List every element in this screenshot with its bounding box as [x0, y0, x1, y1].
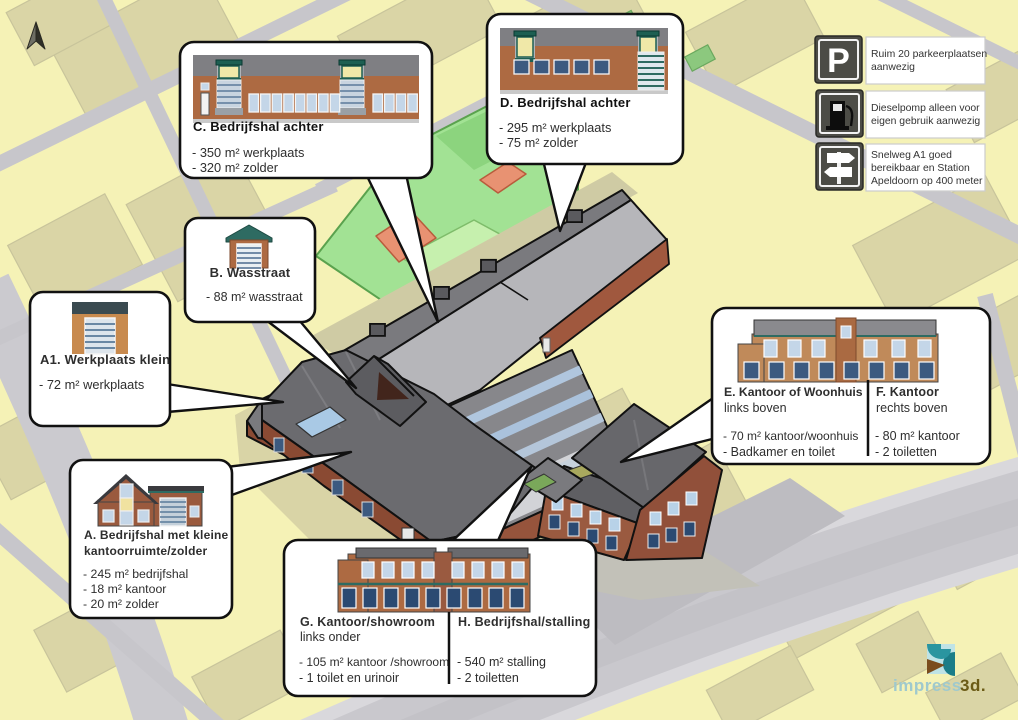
- svg-text:F. Kantoor: F. Kantoor: [876, 385, 939, 399]
- svg-text:rechts boven: rechts boven: [876, 401, 948, 415]
- svg-text:eigen gebruik aanwezig: eigen gebruik aanwezig: [871, 116, 980, 127]
- svg-text:Ruim 20 parkeerplaatsen: Ruim 20 parkeerplaatsen: [871, 49, 987, 60]
- svg-text:- 80 m² kantoor: - 80 m² kantoor: [875, 429, 960, 443]
- svg-text:- Badkamer en toilet: - Badkamer en toilet: [723, 445, 835, 459]
- svg-text:- 540 m² stalling: - 540 m² stalling: [457, 655, 546, 669]
- svg-text:3d.: 3d.: [960, 676, 986, 695]
- svg-text:- 18 m² kantoor: - 18 m² kantoor: [83, 582, 166, 596]
- svg-text:- 1 toilet en urinoir: - 1 toilet en urinoir: [299, 671, 399, 685]
- svg-text:bereikbaar en Station: bereikbaar en Station: [871, 163, 970, 174]
- svg-text:- 2 toiletten: - 2 toiletten: [457, 671, 519, 685]
- svg-text:Apeldoorn op 400 meter: Apeldoorn op 400 meter: [871, 176, 983, 187]
- svg-text:- 72 m² werkplaats: - 72 m² werkplaats: [39, 377, 144, 392]
- svg-text:- 75 m² zolder: - 75 m² zolder: [499, 135, 579, 150]
- svg-text:Dieselpomp alleen voor: Dieselpomp alleen voor: [871, 103, 980, 114]
- svg-text:D. Bedrijfshal achter: D. Bedrijfshal achter: [500, 95, 631, 110]
- svg-text:impress: impress: [893, 676, 962, 695]
- svg-text:- 350 m² werkplaats: - 350 m² werkplaats: [192, 145, 304, 160]
- svg-text:- 20 m² zolder: - 20 m² zolder: [83, 597, 159, 611]
- svg-text:H. Bedrijfshal/stalling: H. Bedrijfshal/stalling: [458, 615, 590, 629]
- svg-text:- 245 m² bedrijfshal: - 245 m² bedrijfshal: [83, 567, 188, 581]
- svg-text:A1. Werkplaats klein: A1. Werkplaats klein: [40, 352, 170, 367]
- svg-text:- 105 m² kantoor /showroom: - 105 m² kantoor /showroom: [299, 655, 449, 669]
- svg-text:B. Wasstraat: B. Wasstraat: [210, 265, 291, 280]
- svg-text:E. Kantoor of Woonhuis: E. Kantoor of Woonhuis: [724, 385, 863, 399]
- svg-text:links boven: links boven: [724, 401, 787, 415]
- svg-text:links onder: links onder: [300, 630, 360, 644]
- svg-text:- 320 m² zolder: - 320 m² zolder: [192, 160, 279, 175]
- svg-text:C. Bedrijfshal achter: C. Bedrijfshal achter: [193, 119, 324, 134]
- svg-text:A. Bedrijfshal met kleine: A. Bedrijfshal met kleine: [84, 528, 229, 542]
- svg-text:aanwezig: aanwezig: [871, 62, 915, 73]
- svg-text:- 295 m² werkplaats: - 295 m² werkplaats: [499, 120, 611, 135]
- svg-text:- 2 toiletten: - 2 toiletten: [875, 445, 937, 459]
- svg-text:G. Kantoor/showroom: G. Kantoor/showroom: [300, 615, 435, 629]
- svg-text:- 88 m² wasstraat: - 88 m² wasstraat: [206, 290, 303, 304]
- svg-text:- 70 m² kantoor/woonhuis: - 70 m² kantoor/woonhuis: [723, 429, 858, 443]
- svg-text:kantoorruimte/zolder: kantoorruimte/zolder: [84, 544, 207, 558]
- svg-text:P: P: [827, 42, 850, 80]
- svg-text:Snelweg A1 goed: Snelweg A1 goed: [871, 150, 952, 161]
